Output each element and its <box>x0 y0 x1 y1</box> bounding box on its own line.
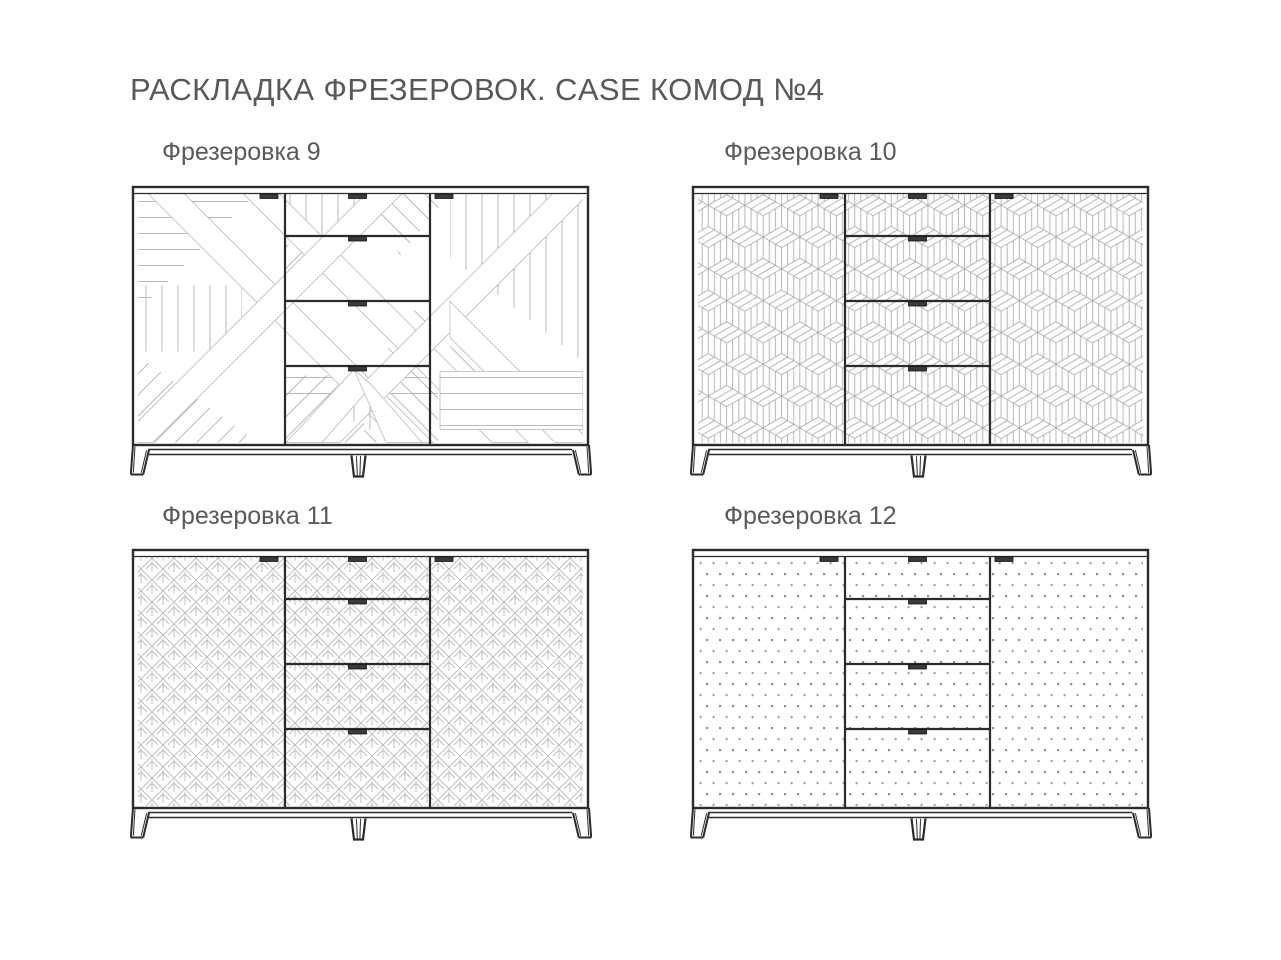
page-title: РАСКЛАДКА ФРЕЗЕРОВОК. CASE КОМОД №4 <box>130 72 824 108</box>
dresser-drawing-12 <box>690 547 1152 845</box>
dresser-drawing-10 <box>690 184 1152 482</box>
dresser-drawing-11 <box>130 547 592 845</box>
variant-label-11: Фрезеровка 11 <box>162 502 333 531</box>
variant-label-10: Фрезеровка 10 <box>724 138 897 167</box>
drawing-sheet: РАСКЛАДКА ФРЕЗЕРОВОК. CASE КОМОД №4 Фрез… <box>0 0 1281 960</box>
variant-label-9: Фрезеровка 9 <box>162 138 321 167</box>
dresser-drawing-9 <box>130 184 592 482</box>
variant-label-12: Фрезеровка 12 <box>724 502 897 531</box>
